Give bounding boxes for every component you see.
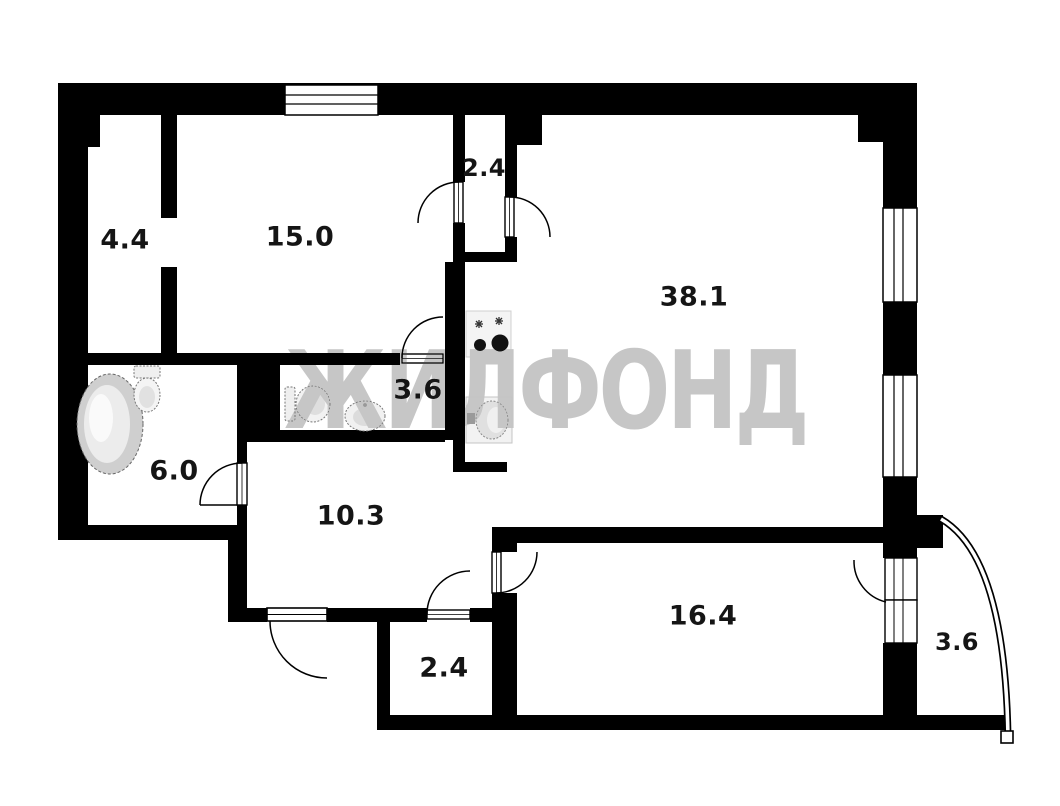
wall-bathroom-right-b (237, 505, 247, 525)
floor-plan: 4.4 15.0 2.4 38.1 3.6 6.0 10.3 2.4 16.4 … (0, 0, 1060, 806)
wall-right-seg3 (883, 477, 917, 527)
room-label-bathroom: 6.0 (149, 456, 198, 487)
wall-kitchen-l-horiz (465, 462, 507, 472)
room-label-bedroom: 15.0 (266, 222, 335, 253)
wall-room2-left (492, 593, 517, 715)
wall-top (58, 83, 917, 115)
wall-bath-block (237, 353, 280, 442)
wall-right-seg1 (883, 142, 917, 208)
room-label-balcony: 3.6 (935, 628, 979, 656)
wall-divider-upper (161, 115, 177, 218)
wall-left (58, 115, 88, 540)
wall-balcony-lower (883, 643, 917, 717)
window (883, 208, 917, 302)
wall-corner-block (517, 115, 542, 145)
room-label-bedroom2: 16.4 (669, 601, 738, 632)
wall-hallway-bottom-right (470, 608, 492, 622)
wall-room2-top (492, 527, 917, 543)
bathroom-door (200, 463, 247, 505)
room2-door (492, 552, 537, 593)
room-label-hall: 4.4 (100, 225, 149, 256)
wall-bathroom-right-a (237, 442, 247, 463)
wall-hallway-bottom-left (228, 608, 267, 622)
wall-wardrobe2-left (377, 608, 390, 730)
room-label-wardrobe-top: 2.4 (462, 154, 506, 182)
room-label-wardrobe-bottom: 2.4 (419, 653, 468, 684)
wardrobe-top-right-door (505, 197, 550, 237)
room-label-kitchen-living: 38.1 (660, 282, 729, 313)
wall-wardrobe-bottom (453, 252, 517, 262)
balcony-door (854, 558, 917, 643)
wall-bottom (377, 715, 1007, 730)
wall-right-seg2 (883, 302, 917, 375)
room-label-hallway: 10.3 (317, 501, 386, 532)
wall-balcony-corner (917, 515, 943, 548)
wall-top-right-block (858, 115, 917, 142)
entrance-door (267, 608, 327, 678)
wall-divider-lower (161, 267, 177, 357)
wardrobe-bottom-door (427, 571, 470, 619)
toilet-icon (134, 366, 160, 412)
window (883, 375, 917, 477)
wall-wardrobe-right-a (505, 115, 517, 197)
watermark: ЖИЛФОНД (284, 338, 806, 446)
wall-balcony-upper (883, 543, 917, 558)
wardrobe-top-left-door (418, 182, 463, 223)
wall-bathroom-bottom (58, 525, 247, 540)
